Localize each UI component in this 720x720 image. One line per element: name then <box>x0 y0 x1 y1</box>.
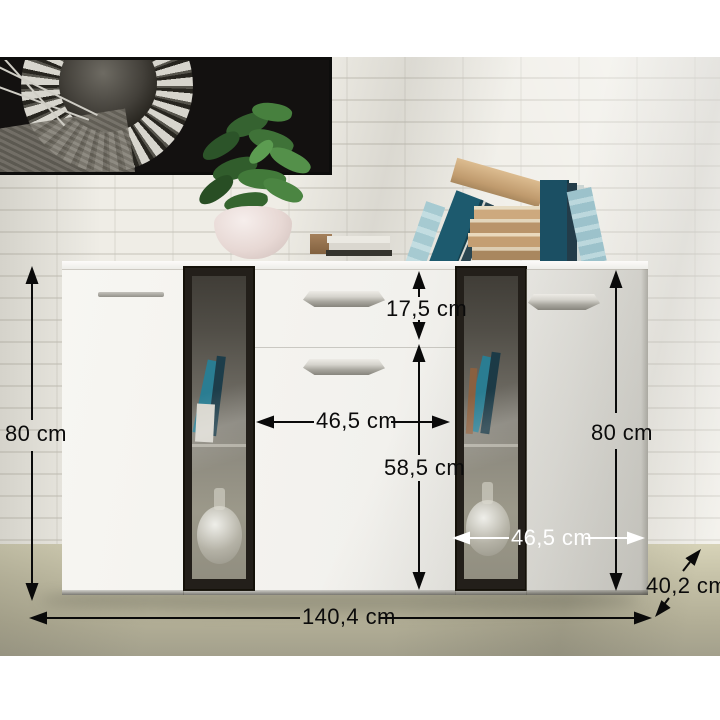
glass-reflection <box>192 276 246 579</box>
left-door-handle <box>98 292 164 297</box>
product-image: 80 cm 17,5 cm 46,5 cm 58,5 cm 46,5 cm 80… <box>0 0 720 720</box>
right-door-handle <box>528 294 600 310</box>
white-book <box>329 243 390 250</box>
dimension-label-lower-height: 58,5 cm <box>384 457 465 479</box>
dimension-label-total-width: 140,4 cm <box>302 606 396 628</box>
drawer-seam <box>255 347 455 348</box>
dimension-label-drawer-height: 17,5 cm <box>386 298 467 320</box>
room-photo <box>0 57 720 656</box>
staircase-stone <box>0 109 135 175</box>
dimension-label-height-right: 80 cm <box>591 422 653 444</box>
drawer-handle <box>303 291 385 307</box>
right-glass-pane <box>464 276 518 579</box>
upright-book <box>540 180 569 261</box>
left-glass-pane <box>192 276 246 579</box>
glass-reflection <box>464 276 518 579</box>
dimension-label-height-left: 80 cm <box>5 423 67 445</box>
dark-book <box>326 250 392 256</box>
dimension-label-depth: 40,2 cm <box>646 575 720 597</box>
dimension-label-center-width: 46,5 cm <box>316 410 397 432</box>
sideboard-base-shadow <box>62 590 648 595</box>
left-glass-door <box>183 266 255 591</box>
dimension-label-right-width: 46,5 cm <box>511 527 592 549</box>
white-book <box>327 236 390 243</box>
center-door-handle <box>303 359 385 375</box>
